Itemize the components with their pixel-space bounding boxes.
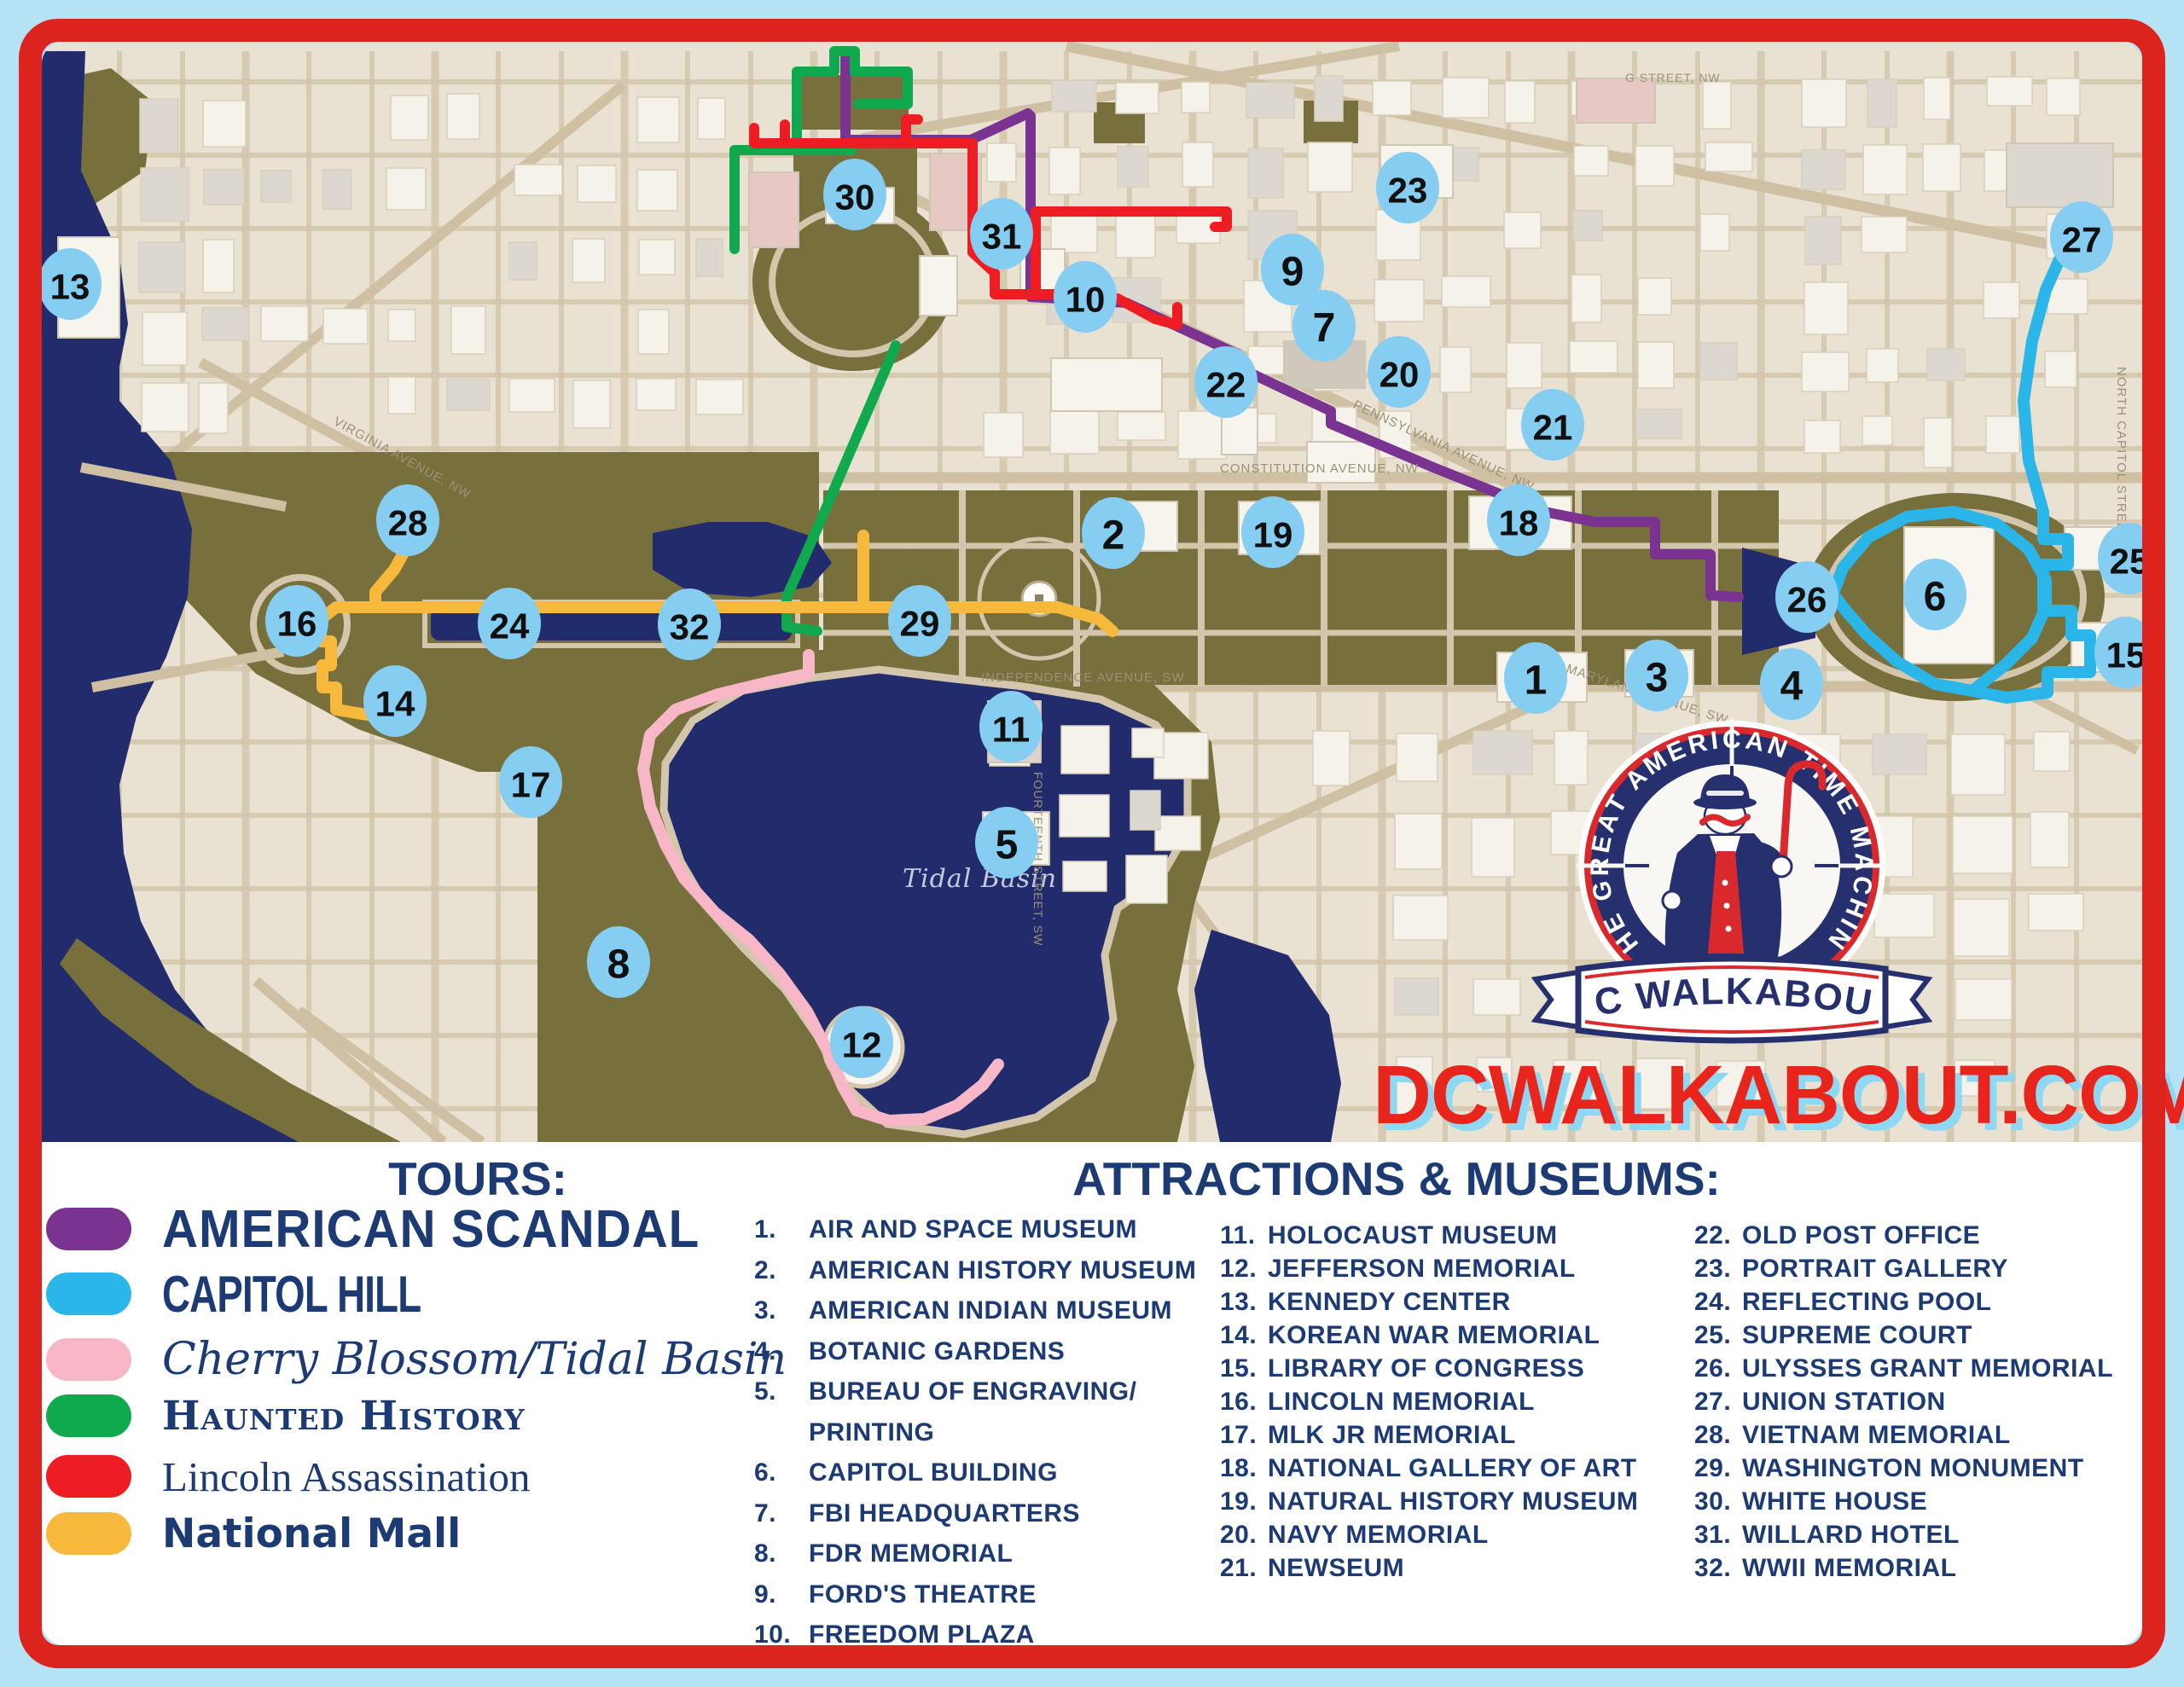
- svg-text:3: 3: [1646, 656, 1669, 701]
- map-marker-22: 22: [1194, 346, 1258, 418]
- map-marker-1: 1: [1504, 642, 1567, 714]
- map-marker-19: 19: [1241, 496, 1304, 568]
- map-marker-31: 31: [970, 198, 1033, 270]
- map-marker-4: 4: [1760, 648, 1823, 720]
- map-marker-17: 17: [499, 746, 562, 818]
- map-marker-10: 10: [1054, 261, 1117, 333]
- map-marker-26: 26: [1775, 561, 1838, 633]
- svg-text:10: 10: [1066, 280, 1106, 320]
- dc-map: Tidal BasinCONSTITUTION AVENUE, NWINDEPE…: [42, 42, 2142, 1142]
- map-marker-32: 32: [658, 588, 721, 660]
- dc-walkabout-poster: Tidal BasinCONSTITUTION AVENUE, NWINDEPE…: [0, 0, 2184, 1687]
- map-label-1: CONSTITUTION AVENUE, NW: [1220, 461, 1419, 476]
- map-marker-30: 30: [823, 159, 886, 230]
- svg-text:26: 26: [1787, 580, 1827, 620]
- svg-text:5: 5: [996, 823, 1019, 868]
- map-marker-5: 5: [975, 807, 1038, 878]
- svg-text:6: 6: [1924, 575, 1947, 620]
- svg-text:1: 1: [1525, 658, 1548, 704]
- svg-text:12: 12: [842, 1025, 882, 1065]
- svg-text:15: 15: [2106, 635, 2142, 675]
- svg-text:24: 24: [490, 606, 530, 646]
- map-marker-20: 20: [1368, 336, 1431, 408]
- svg-text:31: 31: [982, 217, 1022, 257]
- map-marker-24: 24: [478, 588, 541, 659]
- map-marker-6: 6: [1903, 559, 1966, 630]
- svg-text:23: 23: [1388, 171, 1428, 211]
- map-label-6: NORTH CAPITOL STREET: [2114, 367, 2129, 541]
- map-marker-23: 23: [1376, 152, 1439, 223]
- map-marker-14: 14: [363, 665, 427, 737]
- svg-text:28: 28: [388, 503, 428, 543]
- svg-text:17: 17: [511, 765, 551, 805]
- map-marker-11: 11: [979, 691, 1043, 762]
- map-marker-28: 28: [376, 484, 439, 556]
- svg-text:2: 2: [1102, 513, 1125, 559]
- map-area: Tidal BasinCONSTITUTION AVENUE, NWINDEPE…: [42, 42, 2142, 1142]
- svg-text:14: 14: [375, 684, 415, 724]
- svg-text:25: 25: [2110, 542, 2142, 582]
- map-marker-29: 29: [888, 585, 951, 657]
- svg-text:30: 30: [835, 177, 875, 217]
- svg-text:9: 9: [1281, 250, 1304, 295]
- svg-text:16: 16: [277, 604, 317, 644]
- svg-text:22: 22: [1206, 365, 1246, 405]
- map-marker-3: 3: [1625, 640, 1688, 711]
- svg-text:27: 27: [2062, 220, 2102, 260]
- svg-text:19: 19: [1253, 515, 1293, 555]
- map-marker-18: 18: [1487, 484, 1550, 556]
- map-marker-16: 16: [265, 585, 328, 657]
- svg-text:29: 29: [900, 604, 940, 644]
- svg-text:21: 21: [1533, 408, 1573, 448]
- map-marker-9: 9: [1261, 234, 1324, 305]
- map-label-2: INDEPENDENCE AVENUE, SW: [981, 670, 1185, 685]
- map-label-7: G STREET, NW: [1625, 71, 1721, 84]
- svg-text:7: 7: [1313, 306, 1336, 351]
- map-marker-2: 2: [1082, 497, 1145, 569]
- website-wordmark: DCWALKABOUT.COM: [1373, 1047, 2150, 1143]
- svg-text:13: 13: [50, 267, 90, 307]
- map-marker-21: 21: [1521, 389, 1584, 461]
- map-marker-8: 8: [587, 926, 650, 998]
- map-marker-27: 27: [2050, 201, 2113, 273]
- svg-text:20: 20: [1380, 355, 1420, 395]
- svg-text:8: 8: [607, 942, 630, 988]
- svg-text:18: 18: [1499, 503, 1539, 543]
- map-marker-12: 12: [830, 1006, 893, 1078]
- svg-text:11: 11: [992, 710, 1030, 750]
- svg-text:32: 32: [670, 607, 710, 647]
- svg-text:4: 4: [1780, 664, 1804, 710]
